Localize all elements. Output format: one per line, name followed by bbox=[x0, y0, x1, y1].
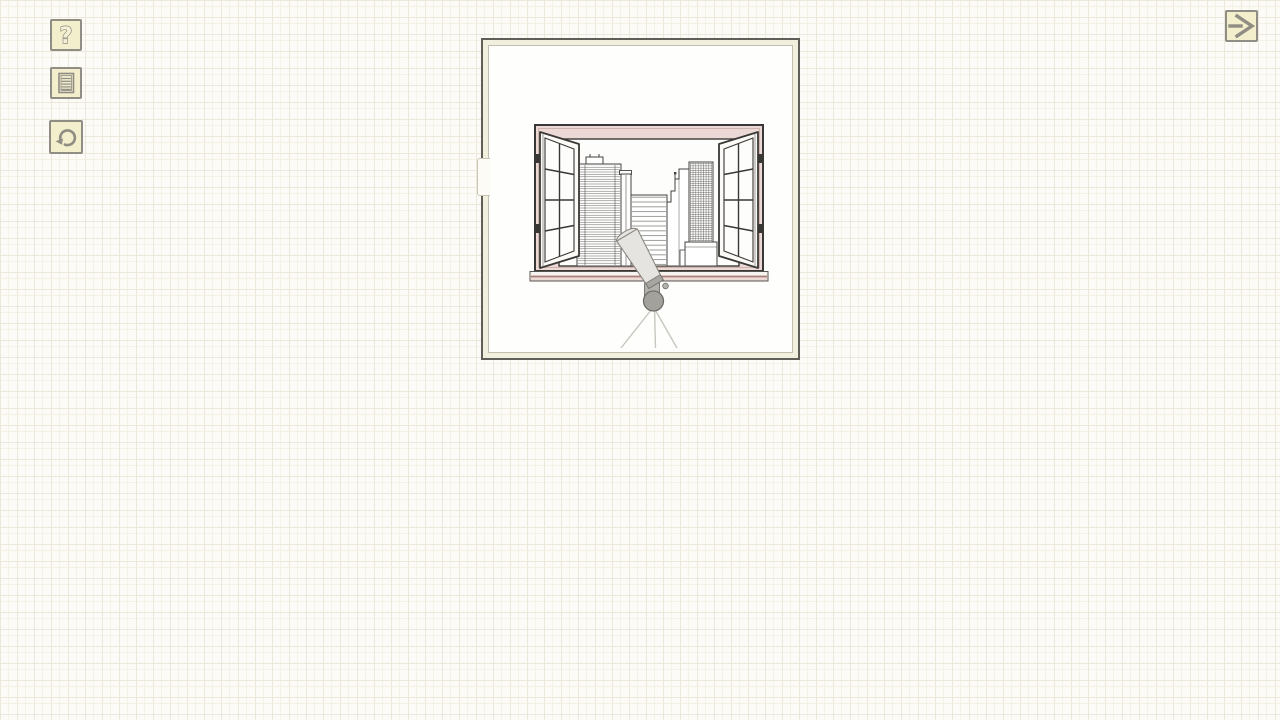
help-button[interactable]: ? bbox=[50, 19, 82, 51]
panel-edge-tab[interactable] bbox=[477, 158, 490, 196]
undo-arrow-icon bbox=[51, 122, 81, 152]
next-button[interactable] bbox=[1225, 10, 1258, 42]
question-mark-glyph: ? bbox=[60, 24, 73, 49]
arrow-right-icon bbox=[1227, 12, 1256, 40]
telescope-mount-ball bbox=[644, 291, 664, 311]
document-icon bbox=[52, 69, 80, 97]
undo-button[interactable] bbox=[49, 120, 83, 154]
building-left-tower bbox=[577, 154, 621, 266]
telescope-focus-knob bbox=[663, 283, 669, 289]
question-mark-icon: ? bbox=[52, 21, 80, 49]
scene-viewport bbox=[488, 45, 793, 353]
game-screen: ? bbox=[0, 0, 1280, 720]
casement-left[interactable] bbox=[535, 132, 579, 268]
notes-button[interactable] bbox=[50, 67, 82, 99]
room-scene bbox=[489, 46, 792, 352]
scene-panel[interactable] bbox=[481, 38, 800, 360]
casement-right[interactable] bbox=[719, 132, 763, 268]
tripod bbox=[621, 307, 677, 348]
